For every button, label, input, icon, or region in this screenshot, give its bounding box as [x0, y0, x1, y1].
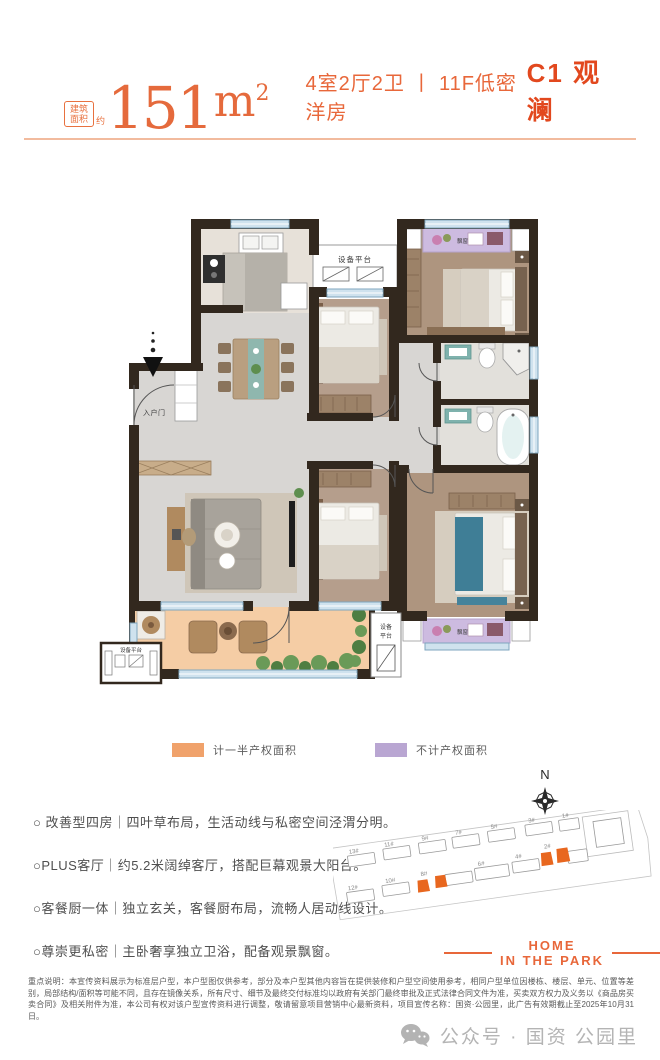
bay-window-top-label: 飘窗	[457, 237, 469, 245]
equipment-platform-bottom-middle: 设备 平台	[371, 613, 401, 677]
dining-area	[218, 339, 294, 399]
legend-swatch-excluded	[375, 743, 407, 757]
building-label: 4#	[515, 854, 523, 861]
building-label: 8#	[420, 871, 428, 878]
feature-item: ○PLUS客厅｜约5.2米阔绰客厅，搭配巨幕观景大阳台。	[33, 855, 353, 874]
equipment-platform-top-label: 设备平台	[338, 254, 372, 264]
equipment-platform-bl-label: 设备平台	[120, 646, 143, 654]
wechat-account-label: 公众号 · 国资 公园里	[440, 1022, 638, 1049]
legend-half-label: 计一半产权面积	[213, 742, 297, 758]
brand-text: HOME IN THE PARK	[500, 938, 604, 968]
brand-line-right	[612, 952, 660, 954]
brand-home-in-the-park: HOME IN THE PARK	[444, 938, 660, 968]
compass-north-label: N	[540, 767, 549, 782]
brand-line-left	[444, 952, 492, 954]
building-label: 6#	[477, 861, 485, 868]
equipment-label-line2: 平台	[380, 632, 392, 640]
floorplan: 设备平台 飘窗 飘窗	[85, 215, 575, 715]
equipment-platform-bottom-left: 设备平台	[101, 643, 161, 683]
area-value: 151 m 2	[107, 82, 269, 134]
building-label: 2#	[544, 844, 552, 851]
bay-window-bottom-label: 飘窗	[457, 628, 469, 636]
building-label: 7#	[455, 830, 463, 837]
legend-excluded-area: 不计产权面积	[375, 742, 488, 758]
legend-half-area: 计一半产权面积	[172, 742, 297, 758]
building-label: 3#	[528, 818, 536, 825]
legend: 计一半产权面积 不计产权面积	[0, 742, 660, 758]
footer: 公众号 · 国资 公园里	[400, 1022, 638, 1049]
area-badge: 建筑面积	[64, 101, 94, 127]
feature-item: ○客餐厨一体｜独立玄关，客餐厨布局，流畅人居动线设计。	[33, 898, 353, 917]
area-unit: m	[214, 82, 256, 122]
entry-door-label: 入户门	[143, 408, 166, 417]
building-label: 9#	[421, 836, 429, 843]
area-badge-group: 建筑面积 约	[64, 101, 107, 127]
disclaimer-text: 重点说明：本宣传资料展示为标准层户型，本户型图仅供参考，部分及本户型其他内容旨在…	[28, 976, 634, 1022]
equipment-platform-top: 设备平台	[313, 245, 397, 293]
siteplan: 13# 11# 9# 7# 5# 3# 1# 12# 10# 8# 6# 4# …	[333, 810, 660, 942]
brand-text-line1: HOME	[500, 938, 604, 953]
unit-name: C1 观澜	[527, 53, 616, 127]
feature-list: ○ 改善型四房｜四叶草布局，生活动线与私密空间泾渭分明。 ○PLUS客厅｜约5.…	[33, 812, 353, 984]
legend-excluded-label: 不计产权面积	[416, 742, 488, 758]
feature-item: ○ 改善型四房｜四叶草布局，生活动线与私密空间泾渭分明。	[33, 812, 353, 831]
wechat-icon	[400, 1023, 430, 1048]
brand-text-line2: IN THE PARK	[500, 953, 604, 968]
area-approx-label: 约	[96, 114, 105, 127]
feature-item: ○尊崇更私密｜主卧奢享独立卫浴，配备观景飘窗。	[33, 941, 353, 960]
layout-subtitle: 4室2厅2卫 丨 11F低密洋房	[305, 67, 526, 125]
building-label: 1#	[562, 813, 570, 820]
entry-cabinet	[175, 367, 197, 421]
area-number: 151	[107, 82, 212, 134]
header: 建筑面积 约 151 m 2 4室2厅2卫 丨 11F低密洋房 C1 观澜	[64, 76, 616, 134]
area-exponent: 2	[255, 84, 269, 104]
equipment-label-line1: 设备	[380, 623, 392, 631]
siteplan-rotated: 13# 11# 9# 7# 5# 3# 1# 12# 10# 8# 6# 4# …	[333, 810, 653, 920]
legend-swatch-half	[172, 743, 204, 757]
header-divider	[24, 138, 636, 140]
